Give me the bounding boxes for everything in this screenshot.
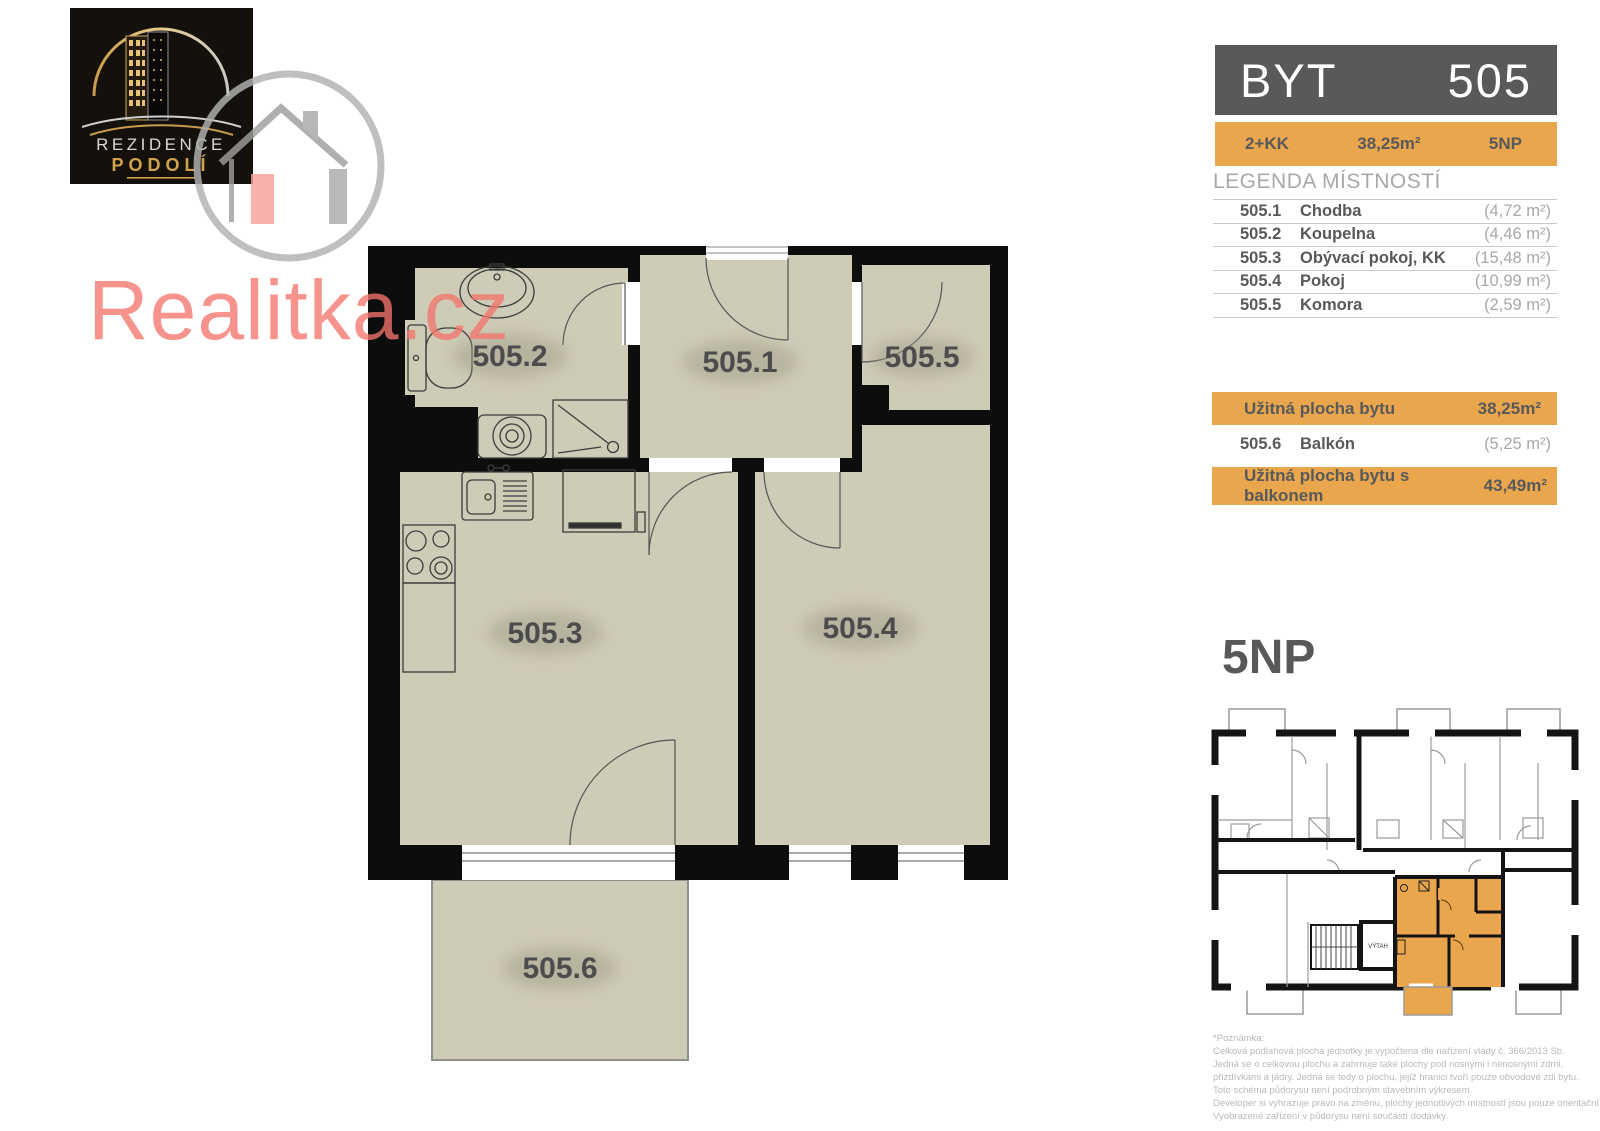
room-number: 505.6 <box>1213 435 1300 454</box>
room-505-4-upper-floor <box>862 425 990 472</box>
realitka-watermark-text: Realitka.cz <box>88 262 510 359</box>
room-area: (5,25 m²) <box>1457 435 1557 454</box>
stairs <box>1311 925 1358 969</box>
legend-heading: LEGENDA MÍSTNOSTÍ <box>1213 170 1441 194</box>
room-area: (4,72 m²) <box>1457 202 1557 221</box>
apartment-title: BYT <box>1240 53 1337 108</box>
apartment-info-bar: 2+KK 38,25m² 5NP <box>1215 122 1557 166</box>
room-number: 505.4 <box>1213 272 1300 291</box>
footnote-line: Vyobrazené zařízení v půdorysu není souč… <box>1213 1110 1600 1123</box>
elevator: VÝTAH <box>1361 922 1395 969</box>
legend-table: 505.1 Chodba (4,72 m²) 505.2 Koupelna (4… <box>1213 199 1557 318</box>
usable-area-value: 38,25m² <box>1478 399 1541 419</box>
room-505-4-floor <box>755 472 990 845</box>
room-label-505-3: 505.3 <box>507 617 582 650</box>
building-icon <box>126 32 168 120</box>
usable-area-balcony-label: Užitná plocha bytu s balkonem <box>1244 466 1484 506</box>
watermark-circle <box>197 74 381 258</box>
house-icon <box>221 108 347 224</box>
building-floor-overview: VÝTAH <box>1191 700 1580 1025</box>
mini-balcony <box>1247 987 1303 1014</box>
room-label-505-6: 505.6 <box>522 952 597 985</box>
disposition: 2+KK <box>1245 134 1289 154</box>
room-label-505-5: 505.5 <box>884 341 959 374</box>
footnote: *Poznámka: Celková podlahová plocha jedn… <box>1213 1032 1600 1123</box>
bedroom-window-2 <box>898 845 964 880</box>
highlighted-unit-balcony <box>1404 987 1452 1015</box>
usable-area-balcony-value: 43,49m² <box>1484 476 1547 496</box>
apartment-number: 505 <box>1448 53 1532 108</box>
apartment-header-bar: BYT 505 <box>1215 45 1557 115</box>
room-number: 505.2 <box>1213 225 1300 244</box>
room-name: Chodba <box>1300 202 1457 221</box>
room-area: (2,59 m²) <box>1457 296 1557 315</box>
mini-balcony <box>1516 987 1561 1014</box>
page: REZIDENCE PODOLÍ Realitka.cz <box>0 0 1600 1131</box>
floor-number: 5NP <box>1489 134 1522 154</box>
footnote-line: přizdívkami a jádry. Jedná se tedy o plo… <box>1213 1071 1600 1084</box>
room-name: Koupelna <box>1300 225 1457 244</box>
usable-area-with-balcony-bar: Užitná plocha bytu s balkonem 43,49m² <box>1212 467 1557 505</box>
total-area: 38,25m² <box>1357 134 1420 154</box>
footnote-line: Celková podlahová plocha jednotky je vyp… <box>1213 1045 1600 1058</box>
footnote-line: Developer si vyhrazuje právo na změnu, p… <box>1213 1097 1600 1110</box>
table-row: 505.1 Chodba (4,72 m²) <box>1213 200 1557 224</box>
room-label-505-4: 505.4 <box>822 612 897 645</box>
usable-area-label: Užitná plocha bytu <box>1244 399 1395 419</box>
table-row: 505.2 Koupelna (4,46 m²) <box>1213 224 1557 248</box>
room-name: Komora <box>1300 296 1457 315</box>
table-row: 505.4 Pokoj (10,99 m²) <box>1213 271 1557 295</box>
usable-area-bar: Užitná plocha bytu 38,25m² <box>1212 392 1557 425</box>
house-chimney-red <box>251 174 274 224</box>
room-number: 505.3 <box>1213 249 1300 268</box>
room-area: (4,46 m²) <box>1457 225 1557 244</box>
room-name: Obývací pokoj, KK <box>1300 249 1457 268</box>
bedroom-window-1 <box>789 845 851 880</box>
floor-heading: 5NP <box>1222 630 1315 685</box>
elevator-label: VÝTAH <box>1368 943 1388 950</box>
footnote-line: *Poznámka: <box>1213 1032 1600 1045</box>
room-area: (10,99 m²) <box>1457 272 1557 291</box>
room-name: Balkón <box>1300 435 1457 454</box>
table-row: 505.3 Obývací pokoj, KK (15,48 m²) <box>1213 247 1557 271</box>
room-area: (15,48 m²) <box>1457 249 1557 268</box>
room-number: 505.1 <box>1213 202 1300 221</box>
room-number: 505.5 <box>1213 296 1300 315</box>
footnote-line: Jedná se o celkovou plochu a zahrnuje ta… <box>1213 1058 1600 1071</box>
wall-step-bathroom <box>408 407 478 458</box>
room-name: Pokoj <box>1300 272 1457 291</box>
realitka-house-watermark <box>180 55 410 285</box>
footnote-line: Toto schéma půdorysu není podrobným stav… <box>1213 1084 1600 1097</box>
table-row: 505.5 Komora (2,59 m²) <box>1213 294 1557 318</box>
room-label-505-1: 505.1 <box>702 346 777 379</box>
balcony-row: 505.6 Balkón (5,25 m²) <box>1213 428 1557 461</box>
wall-step-komora <box>852 385 889 425</box>
